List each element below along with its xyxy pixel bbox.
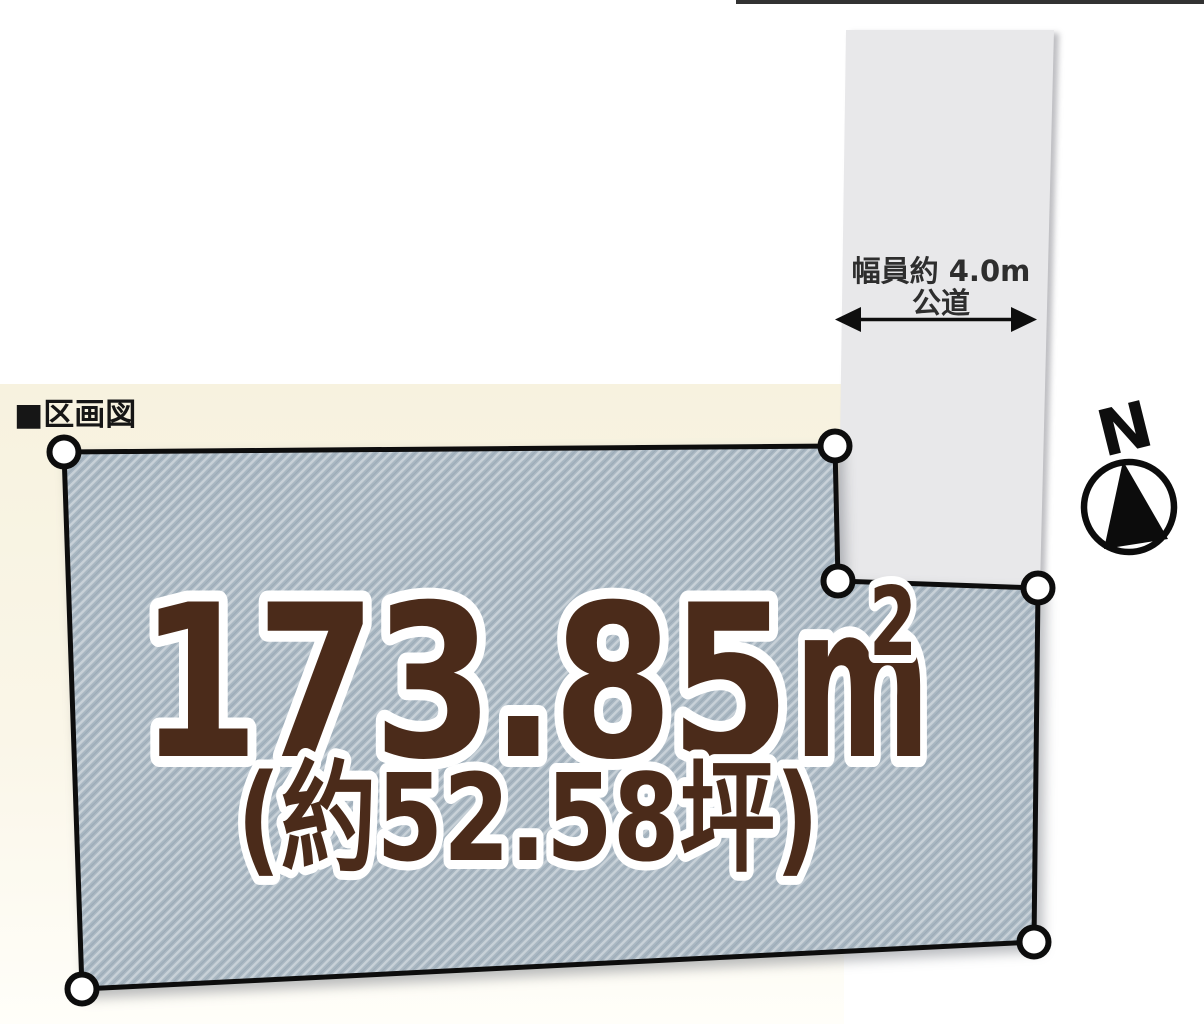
road-width-label: 幅員約 4.0m — [852, 254, 1031, 288]
parcel-vertex — [68, 975, 97, 1004]
parcel-vertex — [821, 432, 850, 461]
lot-diagram-page: 幅員約 4.0m 公道 173.85 m 2 (約52.58坪) — [0, 0, 1204, 1024]
parcel-vertex — [824, 567, 853, 596]
parcel-vertex — [50, 438, 79, 467]
area-sqm-superscript: 2 — [869, 568, 917, 678]
lot-diagram-canvas: 幅員約 4.0m 公道 173.85 m 2 (約52.58坪) — [0, 0, 1204, 1024]
parcel-area-label: 173.85 m 2 (約52.58坪) — [139, 559, 928, 889]
area-tsubo-value: (約52.58坪) — [237, 750, 819, 889]
north-compass: N — [1084, 388, 1174, 552]
section-title: ■区画図 — [14, 397, 136, 433]
parcel-vertex — [1020, 928, 1049, 957]
road-name-label: 公道 — [912, 286, 970, 320]
page-top-rule — [736, 0, 1204, 4]
parcel-vertex — [1024, 574, 1053, 603]
